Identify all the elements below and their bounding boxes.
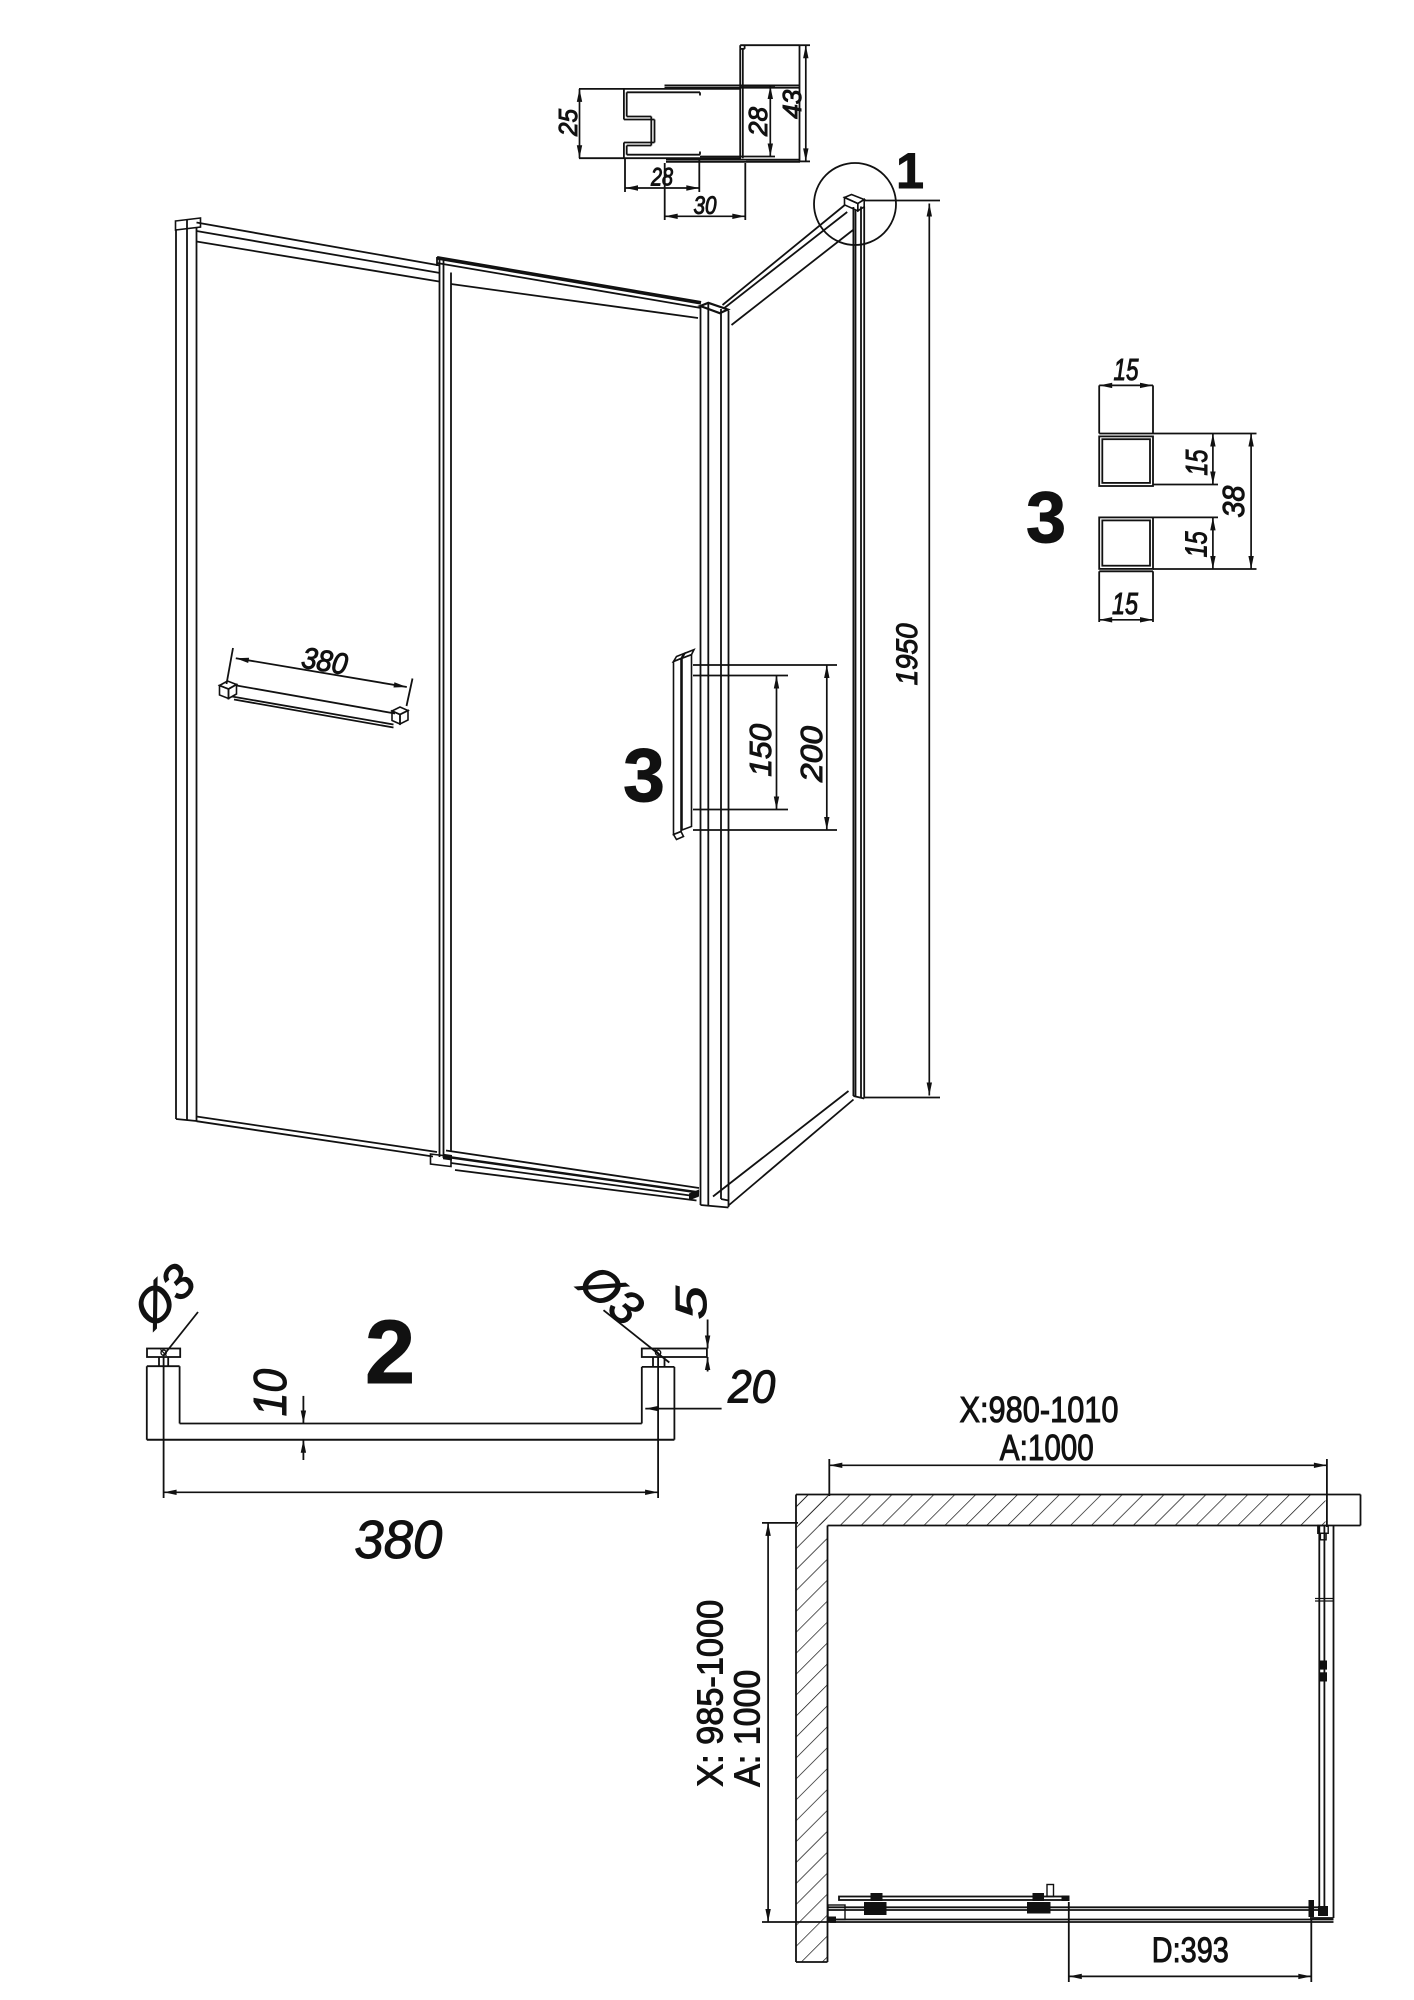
svg-text:1950: 1950: [891, 623, 924, 685]
svg-text:X: 985-1000: X: 985-1000: [690, 1600, 731, 1787]
svg-text:3: 3: [623, 733, 665, 817]
svg-text:25: 25: [553, 108, 583, 136]
svg-text:20: 20: [727, 1361, 776, 1413]
svg-text:28: 28: [650, 164, 673, 192]
svg-text:43: 43: [777, 89, 807, 119]
svg-text:3: 3: [1026, 478, 1066, 558]
svg-text:38: 38: [1216, 485, 1251, 518]
svg-text:380: 380: [354, 1510, 442, 1570]
svg-text:A:1000: A:1000: [1000, 1427, 1094, 1468]
svg-text:15: 15: [1114, 352, 1140, 387]
svg-text:30: 30: [694, 192, 717, 220]
svg-text:1: 1: [896, 143, 924, 199]
svg-text:X:980-1010: X:980-1010: [960, 1389, 1119, 1430]
svg-text:D:393: D:393: [1152, 1931, 1229, 1970]
svg-text:150: 150: [743, 724, 778, 777]
svg-text:200: 200: [794, 726, 829, 783]
svg-text:15: 15: [1179, 531, 1214, 558]
svg-text:5: 5: [667, 1286, 716, 1320]
svg-text:28: 28: [743, 106, 773, 137]
svg-text:2: 2: [365, 1303, 415, 1403]
svg-text:10: 10: [244, 1369, 296, 1417]
svg-text:15: 15: [1112, 586, 1139, 621]
svg-text:15: 15: [1179, 449, 1214, 476]
svg-text:A: 1000: A: 1000: [727, 1670, 768, 1787]
